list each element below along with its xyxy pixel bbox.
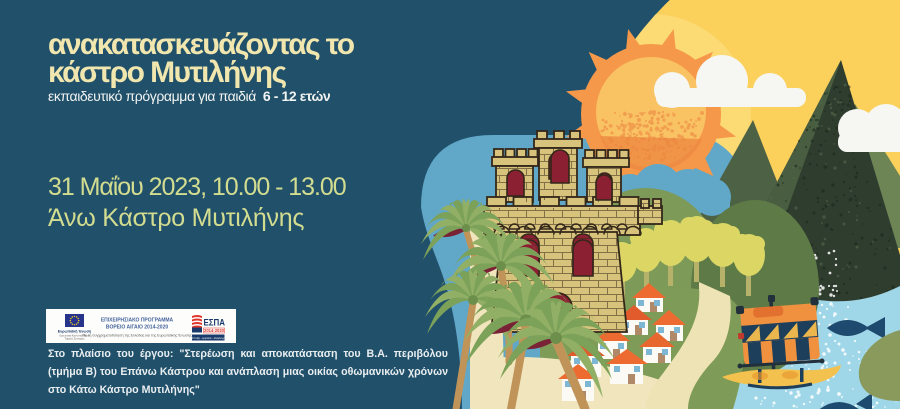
svg-text:ΒΟΡΕΙΟ ΑΙΓΑΙΟ 2014-2020: ΒΟΡΕΙΟ ΑΙΓΑΙΟ 2014-2020 <box>106 325 169 331</box>
svg-text:Με τη συγχρηματοδότηση της Ελλ: Με τη συγχρηματοδότηση της Ελλάδας και τ… <box>82 333 191 337</box>
svg-text:2014-2020: 2014-2020 <box>204 328 225 333</box>
svg-text:ΕΠΙΧΕΙΡΗΣΙΑΚΟ ΠΡΟΓΡΑΜΜΑ: ΕΠΙΧΕΙΡΗΣΙΑΚΟ ΠΡΟΓΡΑΜΜΑ <box>101 318 174 324</box>
svg-text:ΕΣΠΑ: ΕΣΠΑ <box>204 318 226 329</box>
svg-text:ανάπτυξη - εργασία - αλληλεγγύ: ανάπτυξη - εργασία - αλληλεγγύη <box>189 336 228 340</box>
svg-text:Ταμείο Συνοχής: Ταμείο Συνοχής <box>65 338 86 341</box>
